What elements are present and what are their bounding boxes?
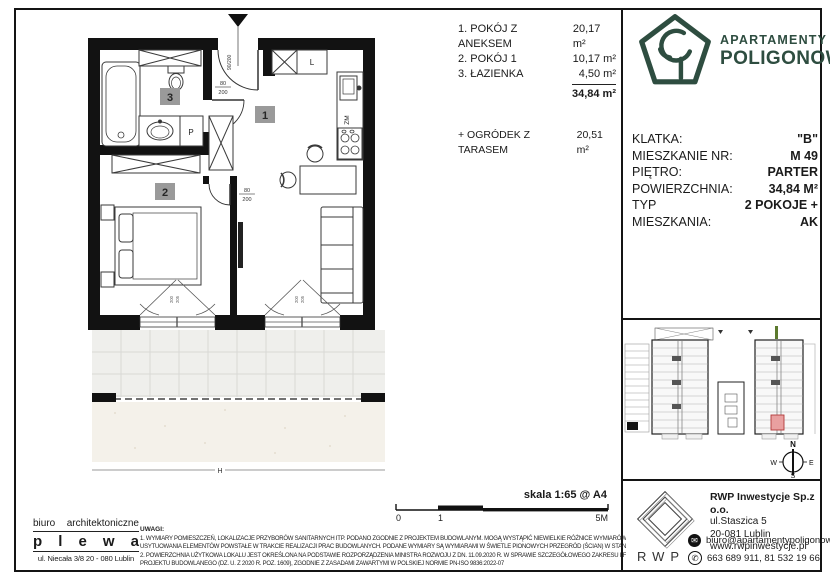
svg-text:200: 200 bbox=[242, 197, 251, 203]
bathroom: P bbox=[102, 50, 203, 146]
entry-arrow-icon: 90/200 bbox=[227, 14, 248, 70]
scale-tick-1: 1 bbox=[438, 513, 443, 523]
pillow bbox=[119, 250, 133, 278]
poligonowa-pentagon-icon bbox=[638, 13, 712, 87]
info-row: PIĘTRO: PARTER bbox=[632, 164, 818, 181]
brand-wordmark: APARTAMENTY POLIGONOWA bbox=[720, 33, 830, 70]
nightstand bbox=[101, 205, 114, 220]
toilet bbox=[168, 66, 184, 91]
svg-text:80: 80 bbox=[220, 81, 226, 87]
rwp-logo-text: RWP bbox=[637, 549, 685, 564]
developer-company: RWP Inwestycje Sp.z o.o. bbox=[710, 491, 830, 516]
architect-address: ul. Niecała 3/8 20 - 080 Lublin bbox=[33, 554, 139, 563]
email-icon: ✉ bbox=[688, 534, 701, 547]
room1-tag: 1 bbox=[262, 110, 268, 122]
site-plan: N S W E bbox=[622, 320, 820, 478]
scale-tick-5m: 5M bbox=[595, 513, 608, 523]
info-row: POWIERZCHNIA: 34,84 M² bbox=[632, 181, 818, 198]
entry-dim-label: 90/200 bbox=[227, 54, 233, 70]
compass-w: W bbox=[770, 460, 777, 467]
svg-text:80: 80 bbox=[244, 188, 250, 194]
building-central bbox=[718, 382, 744, 434]
pillow bbox=[119, 214, 133, 242]
architect-line1: biuro architektoniczne bbox=[33, 518, 139, 529]
architect-block: biuro architektoniczne p l e w a ul. Nie… bbox=[33, 518, 139, 563]
apartment-floorplan: H 90/200 bbox=[75, 8, 385, 478]
carport bbox=[655, 328, 713, 340]
total-area-row: 34,84 m² bbox=[458, 84, 616, 102]
kitchen: L ZM bbox=[272, 50, 363, 194]
scale-tick-0: 0 bbox=[396, 513, 401, 523]
terrace-section-mark: H bbox=[217, 468, 222, 475]
notes-block: UWAGI: 1. WYMIARY POMIESZCZEŃ, LOKALIZAC… bbox=[140, 526, 626, 569]
scale-bar: 0 1 5M bbox=[395, 501, 609, 523]
fridge-label: L bbox=[310, 58, 315, 67]
washer-label: P bbox=[188, 128, 193, 137]
notes-line: 2. POWIERZCHNIA UŻYTKOWA LOKALU JEST OKR… bbox=[140, 552, 626, 560]
bedroom bbox=[101, 205, 201, 287]
brand-line2: POLIGONOWA bbox=[720, 48, 830, 70]
compass-n: N bbox=[790, 440, 796, 449]
right-column-divider bbox=[621, 8, 623, 570]
notes-line: USYTUOWANIA ELEMENTÓW POWSTAŁE W TRAKCIE… bbox=[140, 543, 626, 551]
email-row: ✉ biuro@apartamentypoligonowa.pl bbox=[688, 534, 830, 547]
compass-icon: N S W E bbox=[770, 440, 814, 478]
svg-text:205: 205 bbox=[175, 295, 180, 303]
bath-door-dim: 80 200 bbox=[215, 81, 231, 96]
bathtub bbox=[102, 62, 140, 146]
svg-text:205: 205 bbox=[300, 295, 305, 303]
bedroom-door bbox=[209, 184, 230, 205]
notes-heading: UWAGI: bbox=[140, 526, 626, 533]
compass-e: E bbox=[809, 460, 814, 467]
info-row: MIESZKANIE NR: M 49 bbox=[632, 148, 818, 165]
unit-info: KLATKA: "B" MIESZKANIE NR: M 49 PIĘTRO: … bbox=[632, 131, 818, 230]
room-list-row: 1. POKÓJ Z ANEKSEM 20,17 m² bbox=[458, 22, 616, 52]
green-marker bbox=[775, 326, 778, 339]
highlighted-unit bbox=[771, 415, 784, 430]
building-right bbox=[755, 340, 803, 434]
kitchen-sink bbox=[340, 76, 357, 100]
nightstand bbox=[101, 272, 114, 287]
room-list: 1. POKÓJ Z ANEKSEM 20,17 m² 2. POKÓJ 1 1… bbox=[458, 22, 616, 158]
info-row: TYP MIESZKANIA: 2 POKOJE + AK bbox=[632, 197, 818, 230]
garden-row: + OGRÓDEK Z TARASEM 20,51 m² bbox=[458, 128, 616, 158]
svg-text:200: 200 bbox=[294, 295, 299, 303]
room3-tag: 3 bbox=[167, 92, 173, 104]
siteplan-bottom-line bbox=[623, 479, 820, 481]
notes-line: PROJEKTU BUDOWLANEGO (DZ. U. Z 2020 R. P… bbox=[140, 560, 626, 568]
phone-row: ✆ 663 689 911, 81 532 19 66 bbox=[688, 551, 820, 565]
svg-text:200: 200 bbox=[218, 90, 227, 96]
brand-line1: APARTAMENTY bbox=[720, 33, 830, 47]
phone-icon: ✆ bbox=[688, 551, 702, 565]
info-row: KLATKA: "B" bbox=[632, 131, 818, 148]
floorplan-sheet: H 90/200 bbox=[0, 0, 830, 587]
phone-numbers[interactable]: 663 689 911, 81 532 19 66 bbox=[707, 553, 820, 564]
building-left bbox=[652, 340, 708, 434]
bedroom-door-dim: 80 200 bbox=[239, 188, 255, 203]
room-list-row: 2. POKÓJ 1 10,17 m² bbox=[458, 52, 616, 67]
developer-street: ul.Staszica 5 bbox=[710, 516, 830, 529]
parking-strip bbox=[625, 344, 649, 432]
email-address[interactable]: biuro@apartamentypoligonowa.pl bbox=[706, 535, 830, 546]
chair bbox=[307, 146, 323, 162]
svg-text:200: 200 bbox=[169, 295, 174, 303]
notes-line: 1. WYMIARY POMIESZCZEŃ, LOKALIZACJE PRZY… bbox=[140, 535, 626, 543]
architect-name: p l e w a bbox=[33, 531, 139, 552]
compass-s: S bbox=[791, 473, 796, 478]
room2-tag: 2 bbox=[162, 187, 168, 199]
room-list-row: 3. ŁAZIENKA 4,50 m² bbox=[458, 67, 616, 82]
terrace: H bbox=[92, 330, 385, 475]
scale-label: skala 1:65 @ A4 bbox=[395, 489, 607, 501]
dishwasher-label: ZM bbox=[344, 115, 351, 124]
tv bbox=[238, 222, 243, 268]
sofa bbox=[321, 207, 363, 303]
